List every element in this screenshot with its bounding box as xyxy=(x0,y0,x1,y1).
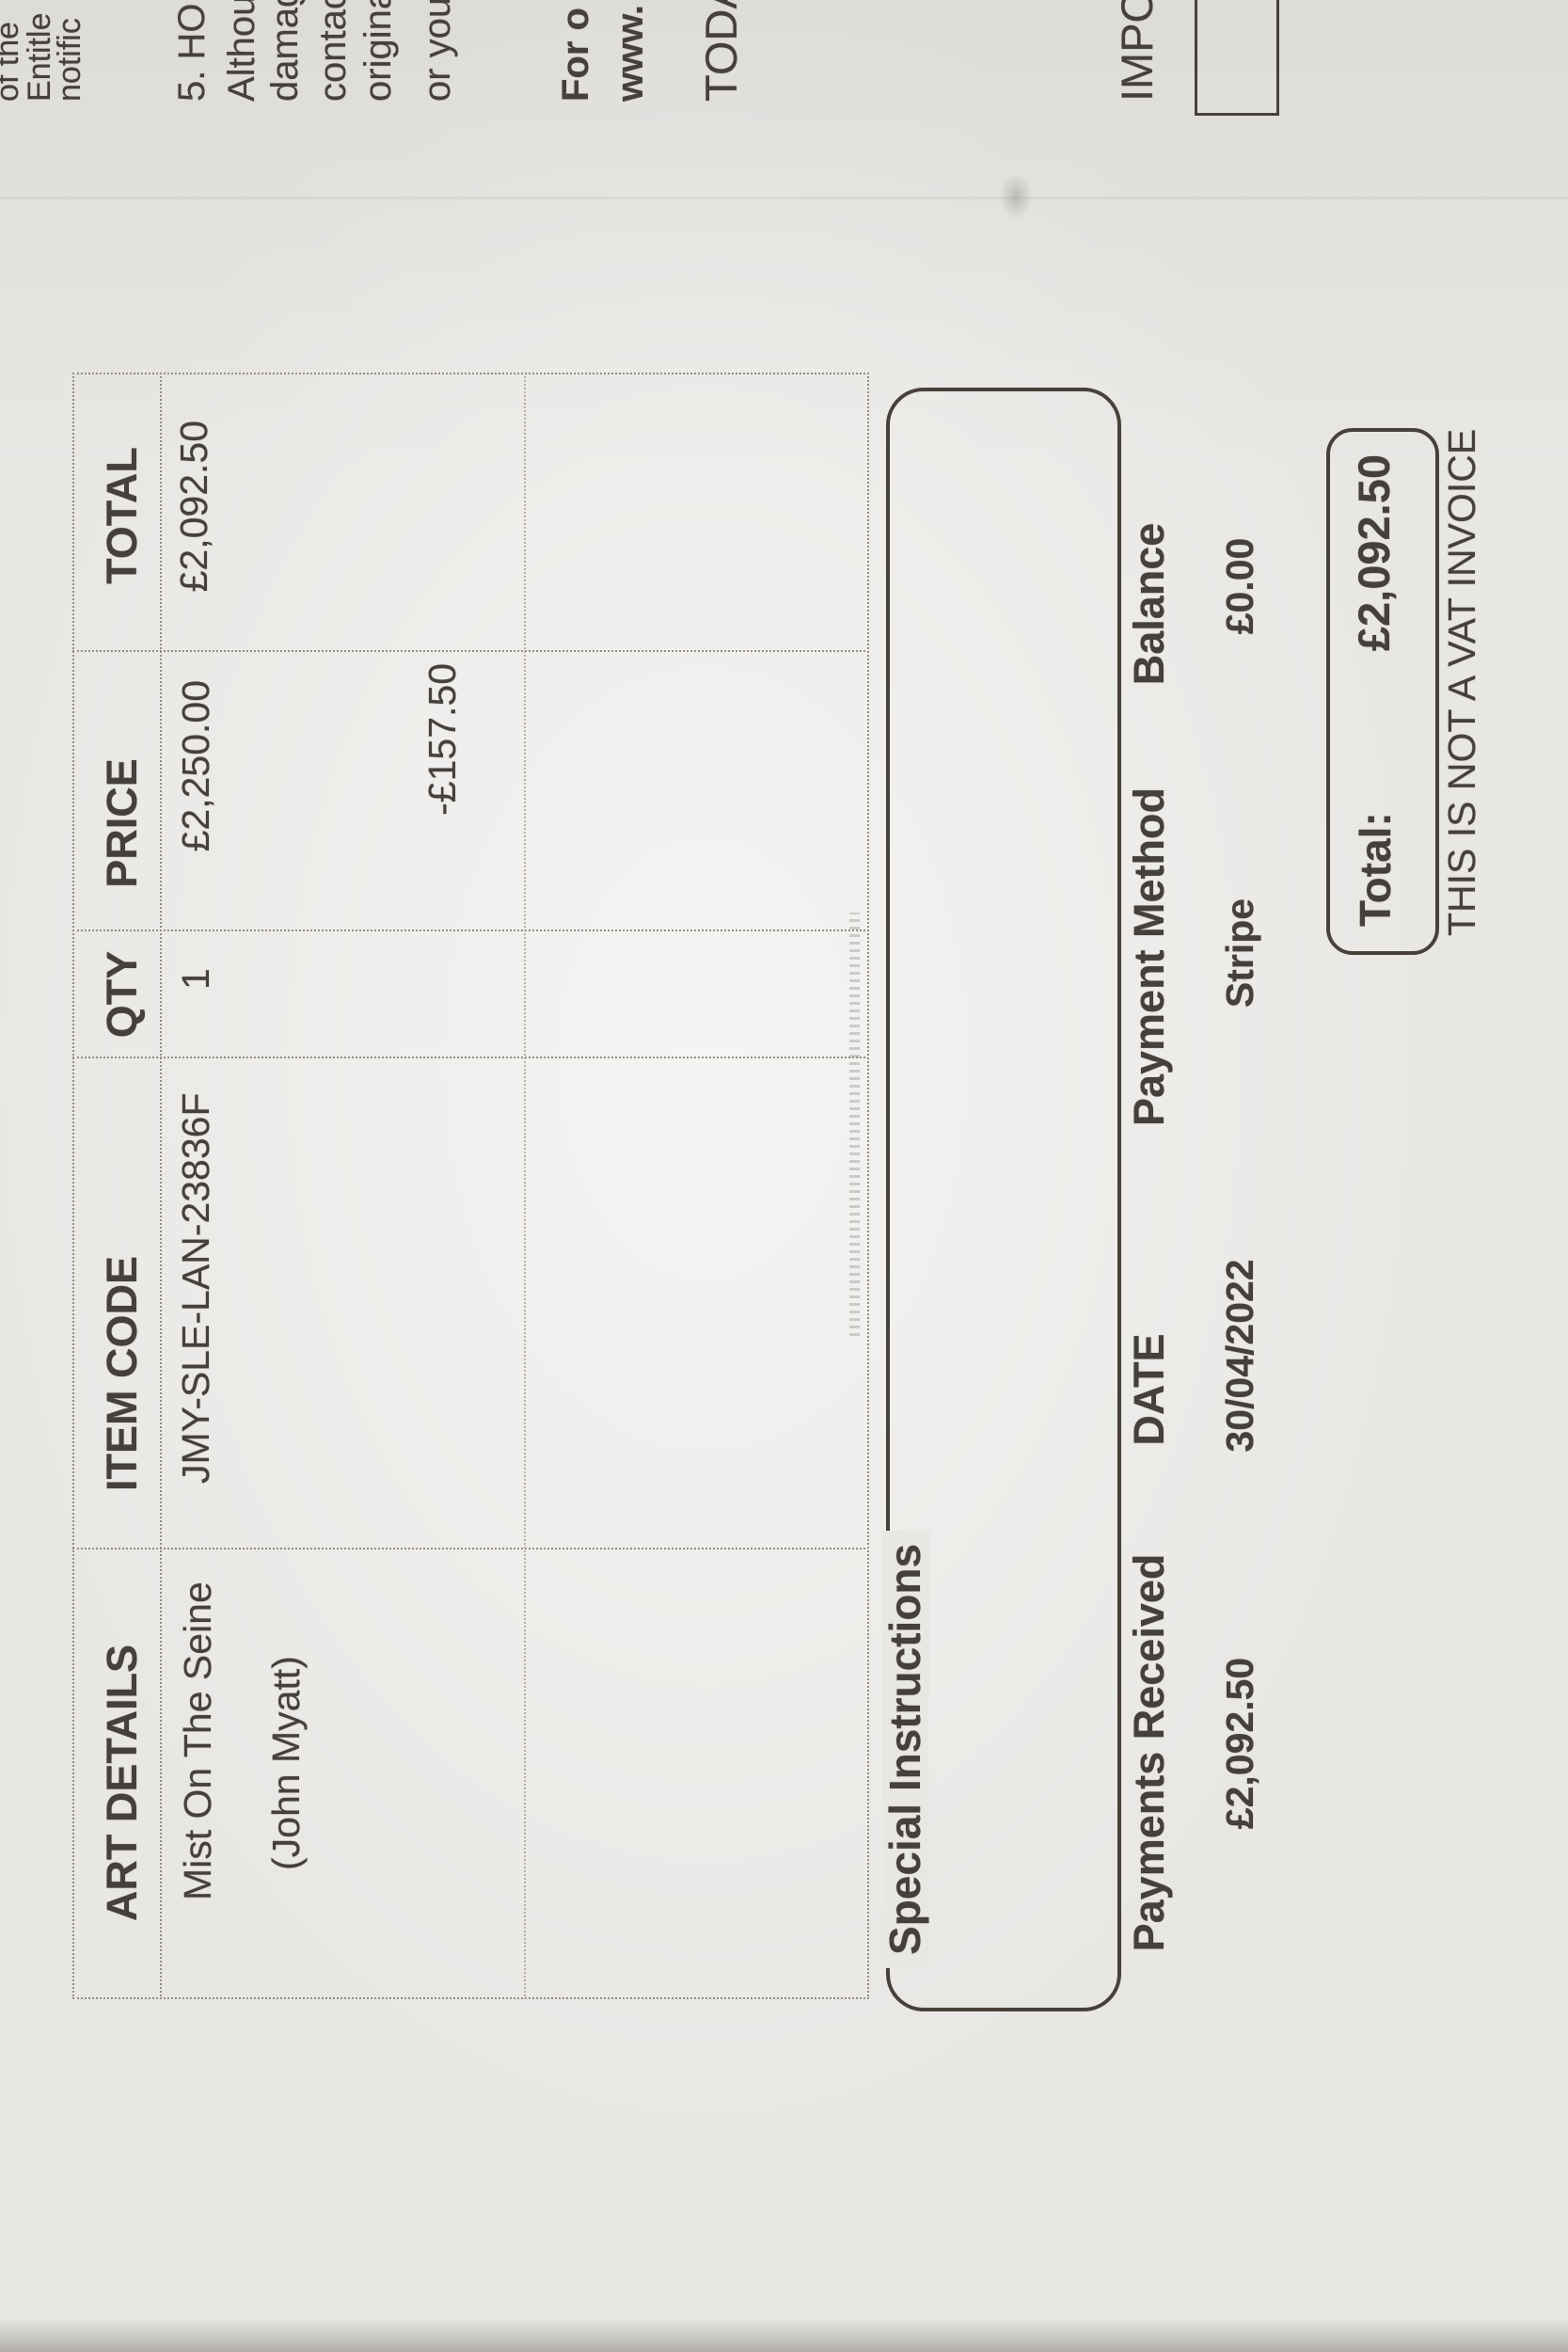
col-header-art-details: ART DETAILS xyxy=(100,1645,146,1921)
cell-item-code: JMY-SLE-LAN-23836F xyxy=(175,1092,216,1484)
cell-art-title: Mist On The Seine xyxy=(177,1581,218,1900)
balance-header: Balance xyxy=(1127,523,1173,686)
col-divider-artdetails-itemcode xyxy=(72,1548,865,1549)
paper-edge-shadow xyxy=(0,2318,1568,2352)
col-header-qty: QTY xyxy=(100,951,146,1039)
col-header-total: TOTAL xyxy=(100,447,146,584)
edge-checkbox xyxy=(1195,0,1279,116)
payments-received-value: £2,092.50 xyxy=(1219,1658,1260,1829)
cell-discount: -£157.50 xyxy=(421,663,463,816)
header-row-divider xyxy=(160,376,162,1999)
edge-para2-line5: origina xyxy=(358,0,399,102)
edge-para3-line2: www. xyxy=(610,5,651,102)
payment-method-value: Stripe xyxy=(1219,898,1260,1008)
balance-value: £0.00 xyxy=(1219,538,1260,635)
col-divider-price-total xyxy=(72,650,865,652)
special-instructions-label: Special Instructions xyxy=(882,1531,929,1968)
cell-qty: 1 xyxy=(175,968,216,990)
col-divider-itemcode-qty xyxy=(72,1057,865,1058)
col-header-price: PRICE xyxy=(100,758,146,888)
vat-note: THIS IS NOT A VAT INVOICE xyxy=(1441,429,1482,936)
total-amount: £2,092.50 xyxy=(1351,454,1399,651)
fold-crease xyxy=(0,197,1568,199)
fine-print-text xyxy=(849,913,860,1336)
cell-total: £2,092.50 xyxy=(173,421,214,592)
edge-para2-line6: or you xyxy=(418,0,458,102)
invoice-document: ART DETAILS ITEM CODE QTY PRICE TOTAL Mi… xyxy=(0,0,1568,2352)
smudge-mark xyxy=(999,173,1033,220)
edge-today-fragment: TODA xyxy=(698,0,746,102)
col-divider-qty-price xyxy=(72,930,865,931)
edge-para2-line3: damag xyxy=(265,0,306,102)
date-value: 30/04/2022 xyxy=(1219,1259,1260,1452)
edge-para1-line3: notific xyxy=(53,18,87,102)
total-label: Total: xyxy=(1353,812,1400,927)
invoice-photo: ART DETAILS ITEM CODE QTY PRICE TOTAL Mi… xyxy=(0,0,1568,2352)
date-header: DATE xyxy=(1127,1333,1173,1445)
edge-important-fragment: IMPO xyxy=(1114,0,1162,102)
col-header-item-code: ITEM CODE xyxy=(100,1256,146,1491)
row-divider xyxy=(524,376,526,1999)
edge-para3-line1: For o xyxy=(556,8,596,102)
edge-para2-line2: Althou xyxy=(222,0,262,102)
cell-art-artist: (John Myatt) xyxy=(265,1656,307,1870)
edge-para2-line4: contac xyxy=(313,0,354,102)
cell-price: £2,250.00 xyxy=(175,680,216,851)
payments-received-header: Payments Received xyxy=(1127,1554,1173,1952)
payment-method-header: Payment Method xyxy=(1127,787,1173,1126)
edge-para2-line1: 5. HO xyxy=(172,4,213,102)
